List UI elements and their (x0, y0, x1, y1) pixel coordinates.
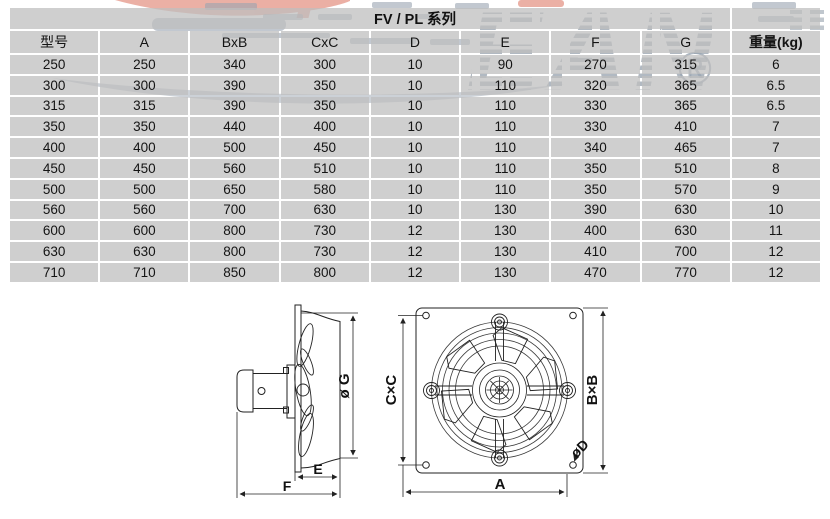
dim-label-a: A (495, 476, 506, 493)
dim-label-g: ø G (336, 374, 353, 399)
dim-label-bxb: B×B (584, 375, 601, 406)
corner-hole (570, 462, 577, 469)
corner-hole (570, 312, 577, 319)
dim-label-f: F (283, 478, 292, 494)
hub-spokes (487, 377, 513, 403)
dimension-a (403, 465, 567, 497)
hub (473, 363, 527, 417)
dim-label-cxc: C×C (383, 375, 400, 406)
spec-sheet-page: { "title": "FV / PL 系列", "watermark": { … (0, 0, 830, 519)
fan-technical-drawings: ø G E F (0, 0, 830, 519)
corner-hole (423, 462, 430, 469)
dim-label-d: øD (567, 436, 592, 461)
dim-label-e: E (313, 461, 322, 477)
motor-cap (237, 370, 253, 412)
corner-hole (423, 312, 430, 319)
front-view-drawing (398, 308, 608, 497)
motor-hole (258, 388, 265, 395)
bell-mouth (301, 311, 340, 468)
dimension-cxc (398, 316, 423, 466)
side-view-drawing (237, 305, 358, 498)
